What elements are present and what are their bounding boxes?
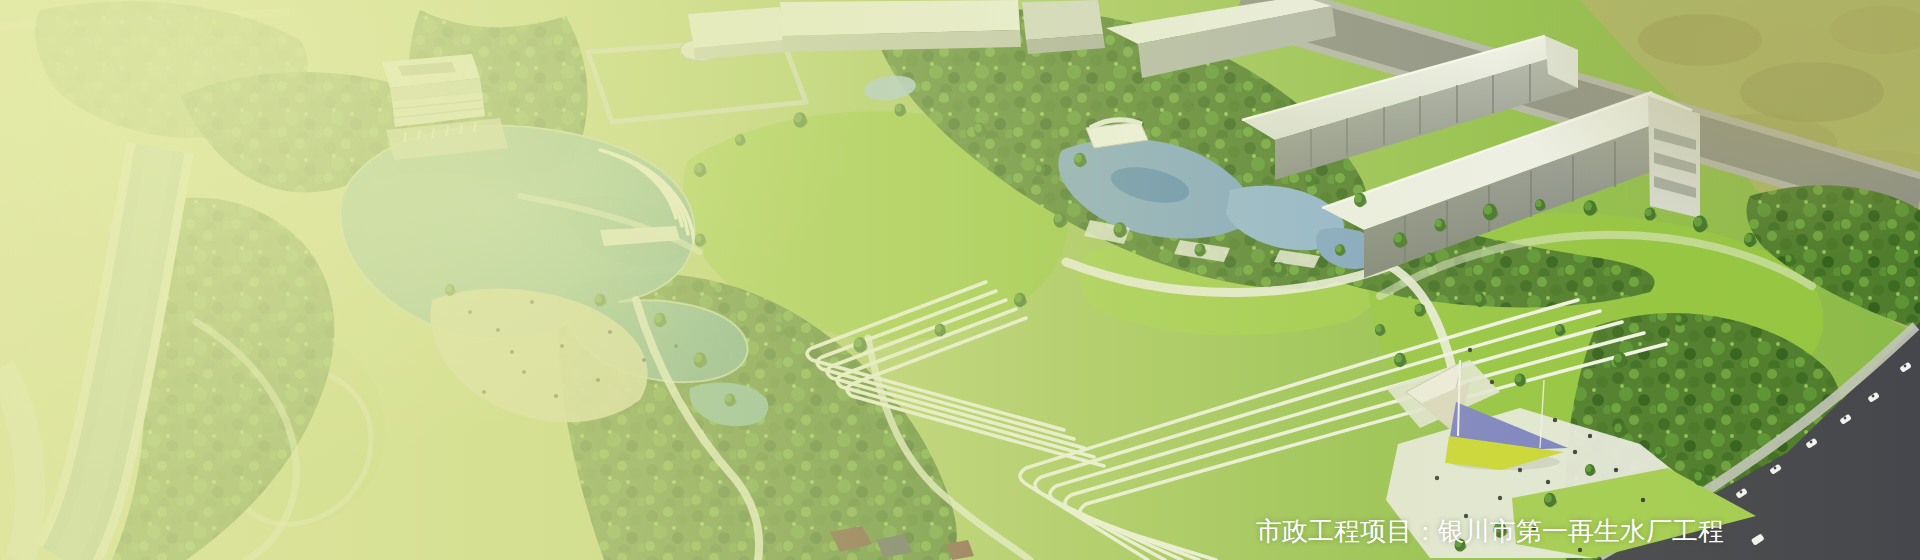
green-wash-overlay [0, 0, 1920, 560]
aerial-rendering [0, 0, 1920, 560]
project-caption: 市政工程项目：银川市第一再生水厂工程 [1256, 517, 1724, 545]
banner-image: 市政工程项目：银川市第一再生水厂工程 [0, 0, 1920, 560]
